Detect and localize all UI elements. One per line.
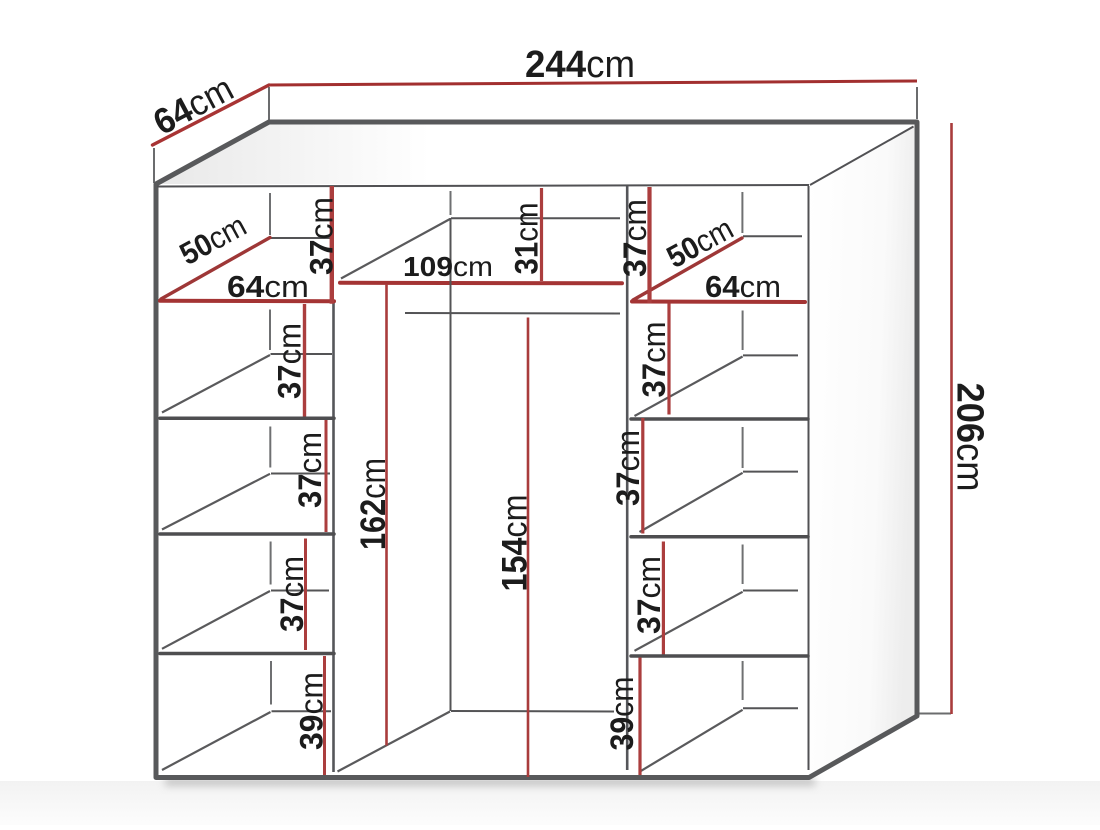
svg-text:64cm: 64cm (227, 269, 309, 304)
svg-text:37cm: 37cm (272, 323, 308, 399)
svg-text:37cm: 37cm (636, 322, 672, 398)
svg-text:37cm: 37cm (617, 199, 653, 277)
svg-text:37cm: 37cm (292, 432, 328, 508)
svg-text:37cm: 37cm (304, 197, 340, 275)
svg-text:109cm: 109cm (403, 251, 493, 282)
svg-text:31cm: 31cm (509, 203, 545, 275)
svg-text:37cm: 37cm (631, 556, 667, 634)
svg-text:37cm: 37cm (610, 430, 646, 506)
svg-text:39cm: 39cm (294, 672, 330, 750)
svg-text:206cm: 206cm (949, 383, 991, 492)
svg-text:244cm: 244cm (525, 44, 635, 86)
svg-text:162cm: 162cm (354, 458, 393, 550)
svg-text:64cm: 64cm (705, 269, 781, 304)
svg-text:37cm: 37cm (274, 556, 310, 632)
svg-text:39cm: 39cm (604, 677, 640, 751)
svg-text:154cm: 154cm (496, 495, 535, 592)
